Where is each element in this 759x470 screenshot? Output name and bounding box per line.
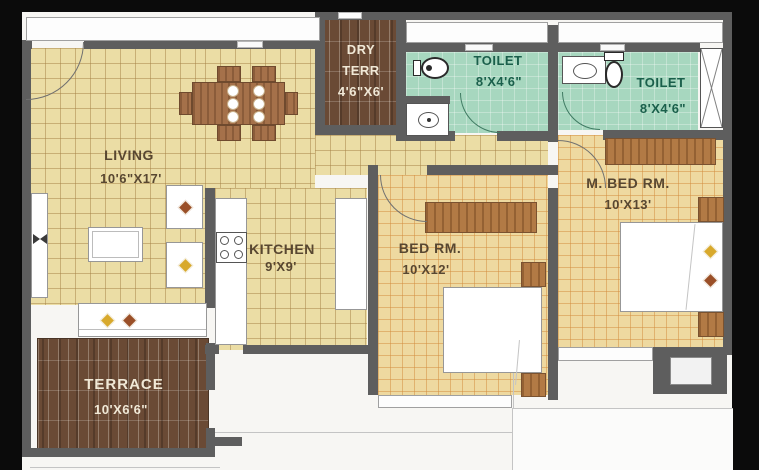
label-toilet-common-name: TOILET — [474, 54, 523, 67]
window-band — [26, 17, 320, 41]
tv-unit — [31, 193, 48, 298]
wall-segment — [548, 188, 558, 400]
label-dry-terrace-line2: TERR — [342, 64, 379, 77]
dining-chair — [179, 92, 192, 115]
dining-chair — [217, 125, 241, 141]
label-toilet-master-dims: 8'X4'6" — [640, 102, 686, 115]
armchair — [166, 185, 203, 229]
cushion-diamond — [178, 258, 194, 274]
label-kitchen-name: KITCHEN — [249, 242, 315, 256]
washbasin-icon — [562, 56, 606, 84]
nightstand — [521, 262, 546, 287]
duct-inner — [670, 357, 712, 385]
label-master-bedroom-dims: 10'X13' — [604, 198, 651, 211]
building-outline — [30, 457, 220, 468]
coffee-table-inner — [92, 231, 139, 258]
wc-icon — [602, 52, 626, 90]
armchair — [166, 242, 203, 288]
label-dry-terrace-dims: 4'6"X6' — [338, 85, 384, 98]
dining-chair — [252, 66, 276, 82]
plate — [227, 98, 239, 110]
wall-segment — [84, 40, 320, 49]
floor-terrace — [37, 338, 209, 452]
nightstand — [521, 373, 546, 397]
dining-chair — [217, 66, 241, 82]
wall-segment — [22, 448, 214, 457]
washbasin-icon — [406, 103, 449, 136]
cushion-diamond — [178, 200, 194, 216]
wall-segment — [315, 125, 406, 135]
window-tab — [600, 44, 625, 51]
sofa-seat-line — [79, 329, 206, 330]
wall-segment — [723, 20, 732, 355]
wc-icon — [413, 56, 451, 80]
wall-segment — [205, 188, 215, 308]
floor-plan-canvas: LIVING 10'6"X17' KITCHEN 9'X9' BED RM. 1… — [0, 0, 759, 470]
label-bedroom-name: BED RM. — [399, 241, 462, 255]
cushion-diamond — [100, 313, 116, 329]
label-master-bedroom-name: M. BED RM. — [586, 176, 670, 190]
wall-segment — [427, 165, 558, 175]
window-band — [406, 22, 548, 43]
sofa — [78, 303, 207, 337]
wall-segment — [243, 345, 368, 354]
plate — [253, 85, 265, 97]
kitchen-counter — [215, 198, 247, 345]
window-tab — [338, 12, 362, 19]
nightstand — [698, 312, 724, 337]
window-band — [558, 22, 723, 43]
dining-table — [192, 82, 285, 125]
label-kitchen-dims: 9'X9' — [265, 260, 297, 273]
bed — [620, 222, 723, 312]
label-terrace-dims: 10'X6'6" — [94, 403, 148, 416]
wall-segment — [315, 12, 732, 20]
wall-segment — [22, 40, 31, 457]
label-living-dims: 10'6"X17' — [100, 172, 162, 185]
wall-segment — [558, 43, 700, 52]
kitchen-counter — [335, 198, 367, 310]
tv-icon — [33, 234, 47, 244]
label-dry-terrace-line1: DRY — [347, 43, 375, 56]
wardrobe — [425, 202, 537, 233]
plate — [253, 98, 265, 110]
label-living-name: LIVING — [104, 148, 154, 162]
window-tab — [237, 41, 263, 48]
nightstand — [698, 197, 724, 222]
label-toilet-common-dims: 8'X4'6" — [476, 75, 522, 88]
coffee-table — [88, 227, 143, 262]
label-terrace-name: TERRACE — [84, 377, 164, 392]
label-toilet-master-name: TOILET — [637, 76, 686, 89]
dining-chair — [252, 125, 276, 141]
plate — [227, 111, 239, 123]
plate — [253, 111, 265, 123]
wardrobe — [605, 138, 716, 165]
building-outline — [512, 408, 733, 470]
bed — [443, 287, 542, 373]
window-band — [558, 347, 653, 361]
stove-icon — [216, 232, 247, 263]
plate — [227, 85, 239, 97]
duct-x-icon — [700, 48, 723, 128]
plan-sheet: LIVING 10'6"X17' KITCHEN 9'X9' BED RM. 1… — [22, 12, 732, 470]
window-tab — [465, 44, 493, 51]
dining-chair — [285, 92, 298, 115]
wall-segment — [548, 25, 558, 142]
wall-segment — [497, 131, 548, 141]
wall-segment — [207, 437, 242, 446]
wall-segment — [205, 345, 219, 354]
wall-segment — [396, 20, 406, 141]
label-bedroom-dims: 10'X12' — [402, 263, 449, 276]
cushion-diamond — [122, 313, 138, 329]
